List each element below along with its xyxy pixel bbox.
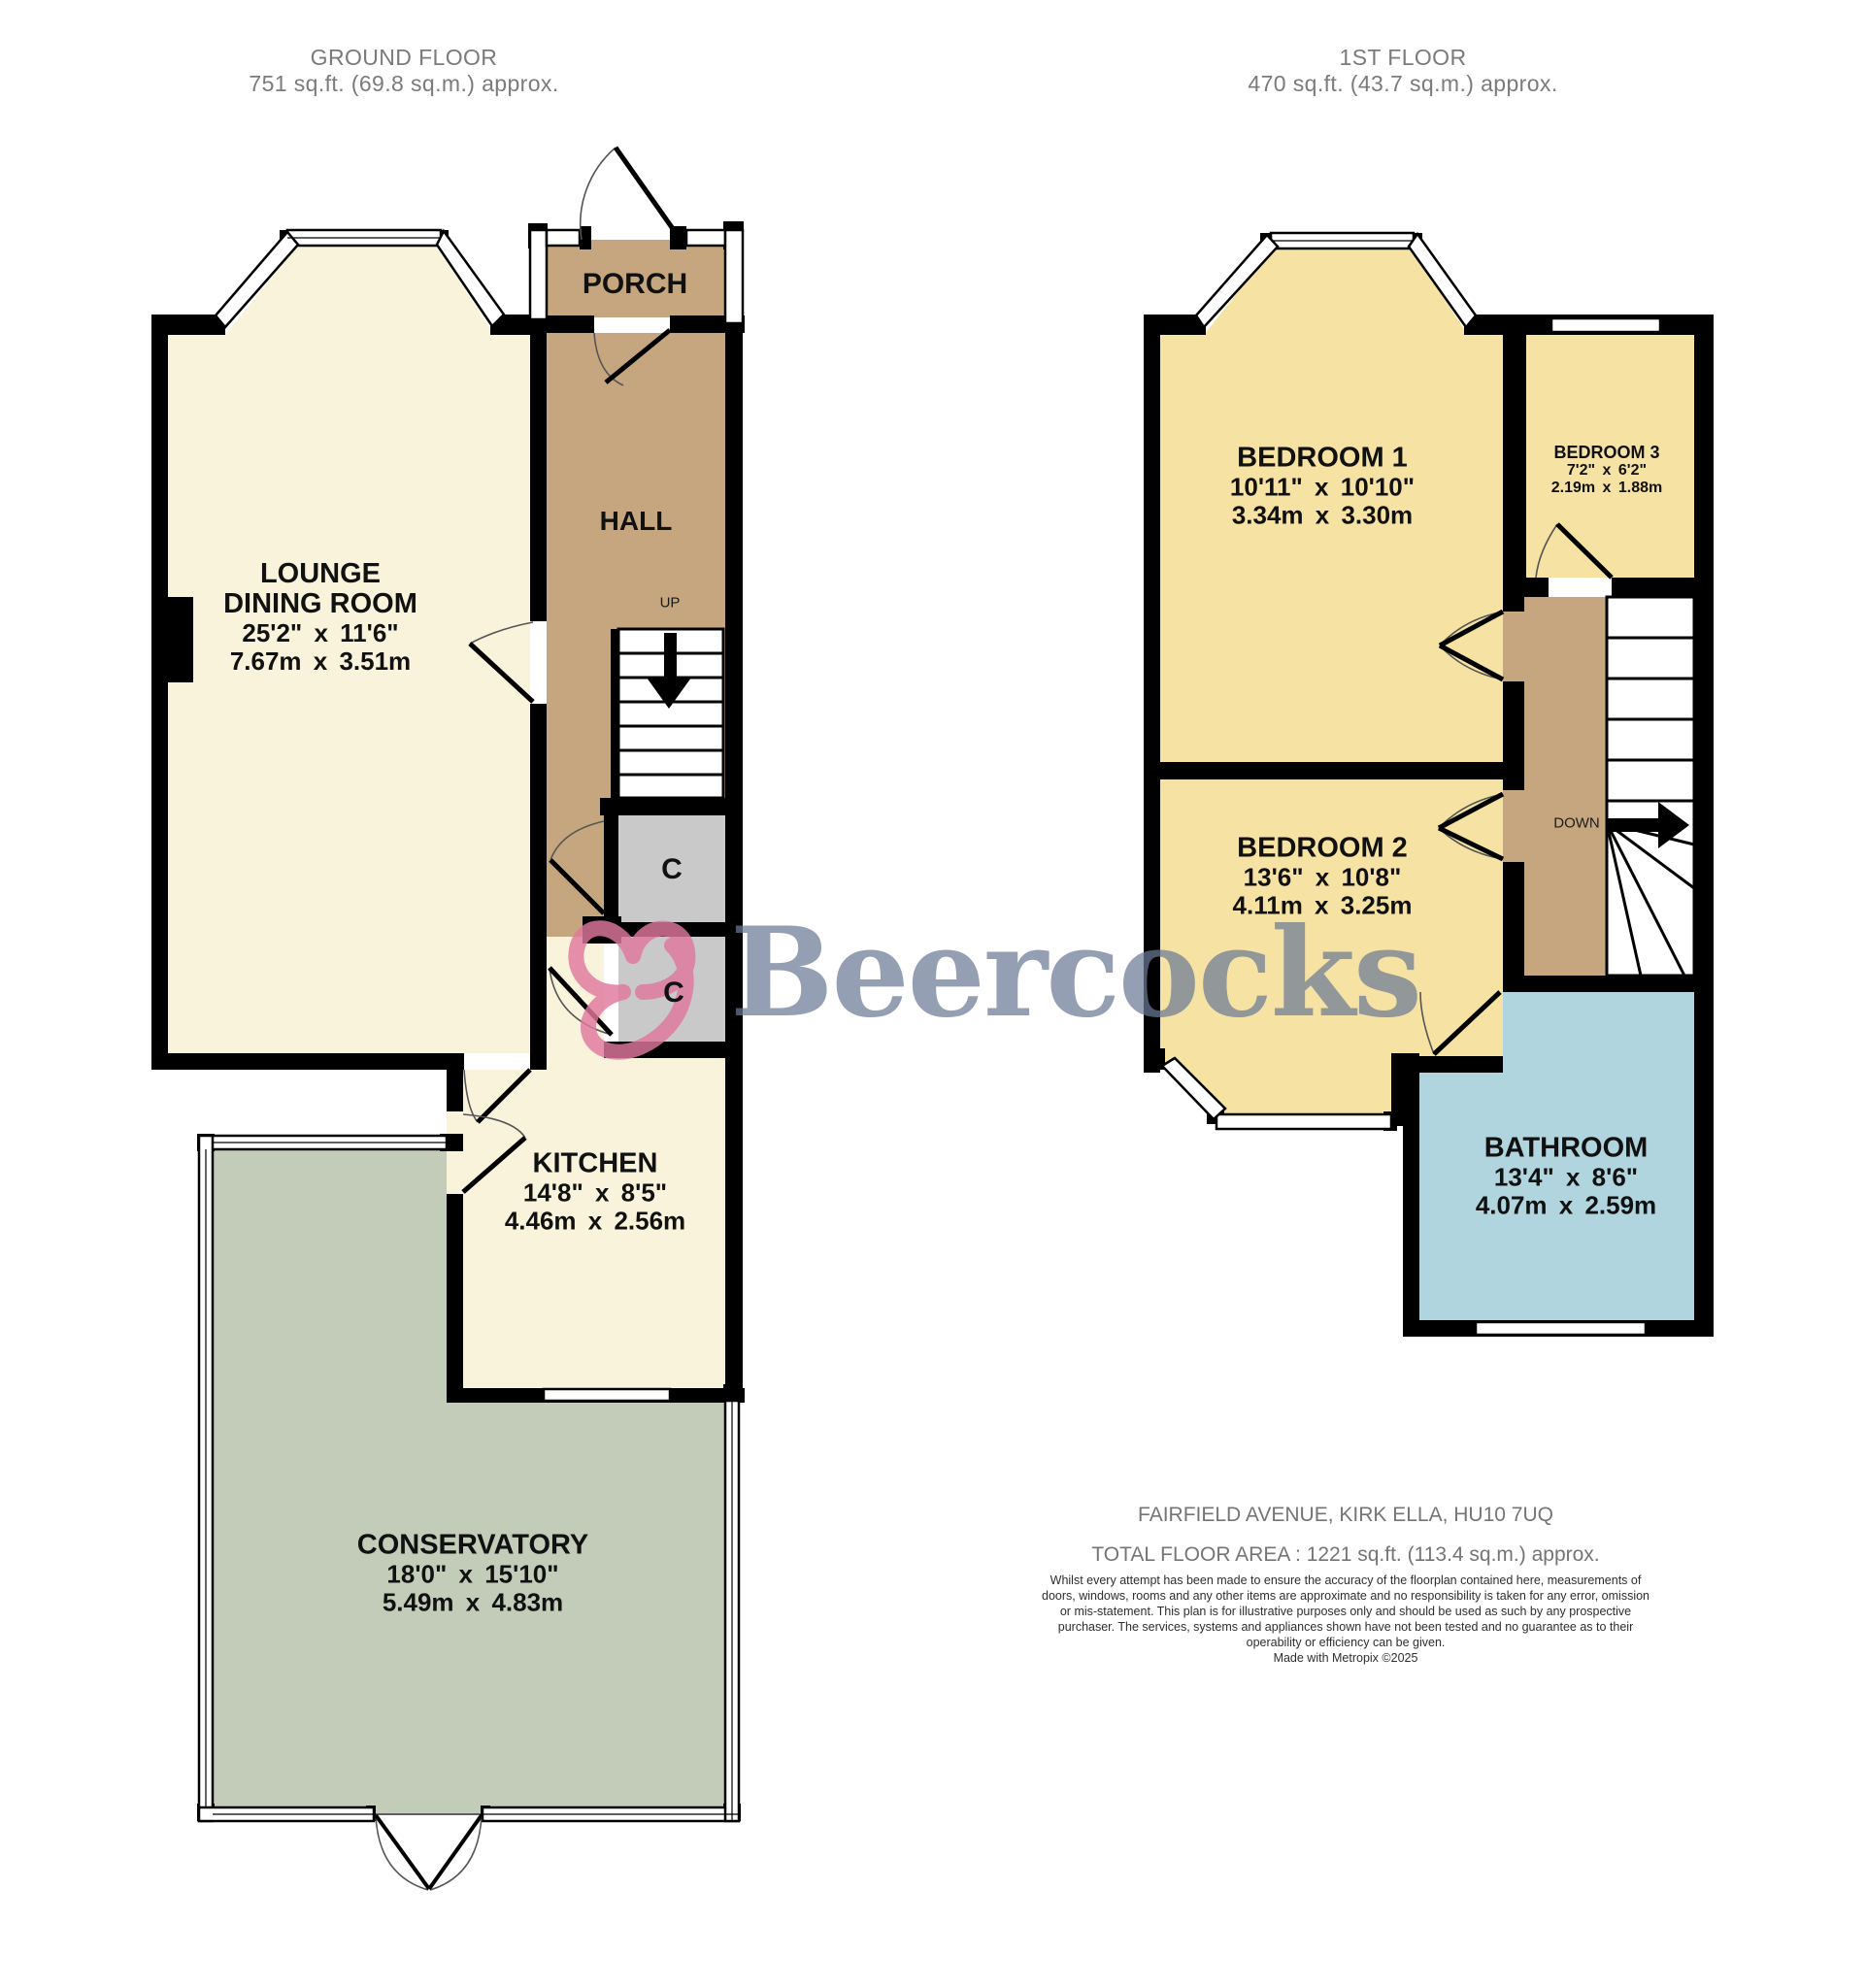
conservatory-metric: 5.49m x 4.83m <box>357 1589 589 1617</box>
ground-floor-area: 751 sq.ft. (69.8 sq.m.) approx. <box>249 71 558 97</box>
ground-floor-header: GROUND FLOOR 751 sq.ft. (69.8 sq.m.) app… <box>249 45 558 97</box>
hall-label: HALL <box>600 506 673 537</box>
bedroom3-name: BEDROOM 3 <box>1551 443 1663 462</box>
bathroom-name: BATHROOM <box>1476 1134 1656 1164</box>
bedroom1-metric: 3.34m x 3.30m <box>1230 502 1415 530</box>
bathroom-imperial: 13'4" x 8'6" <box>1476 1164 1656 1192</box>
closet-bottom-label: C <box>663 977 684 1010</box>
disclaimer-text: Whilst every attempt has been made to en… <box>1035 1573 1656 1650</box>
kitchen-imperial: 14'8" x 8'5" <box>505 1179 685 1208</box>
kitchen-label: KITCHEN 14'8" x 8'5" 4.46m x 2.56m <box>505 1149 685 1236</box>
ground-floor-plan <box>151 148 745 1890</box>
lounge-name2: DINING ROOM <box>223 589 417 619</box>
bedroom2-name: BEDROOM 2 <box>1233 834 1413 864</box>
conservatory-label: CONSERVATORY 18'0" x 15'10" 5.49m x 4.83… <box>357 1531 589 1617</box>
lounge-label: LOUNGE DINING ROOM 25'2" x 11'6" 7.67m x… <box>223 559 417 676</box>
bathroom-metric: 4.07m x 2.59m <box>1476 1192 1656 1220</box>
bedroom3-label: BEDROOM 3 7'2" x 6'2" 2.19m x 1.88m <box>1551 443 1663 497</box>
lounge-imperial: 25'2" x 11'6" <box>223 619 417 647</box>
total-floor-area: TOTAL FLOOR AREA : 1221 sq.ft. (113.4 sq… <box>1091 1543 1599 1567</box>
first-floor-header: 1ST FLOOR 470 sq.ft. (43.7 sq.m.) approx… <box>1248 45 1557 97</box>
conservatory-name: CONSERVATORY <box>357 1531 589 1561</box>
ground-floor-title: GROUND FLOOR <box>249 45 558 71</box>
bedroom1-imperial: 10'11" x 10'10" <box>1230 474 1415 502</box>
stairs-up-arrow <box>664 633 677 681</box>
kitchen-metric: 4.46m x 2.56m <box>505 1208 685 1236</box>
porch-label: PORCH <box>583 268 687 301</box>
lounge-metric: 7.67m x 3.51m <box>223 647 417 676</box>
bedroom2-imperial: 13'6" x 10'8" <box>1233 864 1413 892</box>
stairs-up-label: UP <box>660 595 681 612</box>
stairs-down-label: DOWN <box>1553 815 1600 832</box>
kitchen-name: KITCHEN <box>505 1149 685 1179</box>
closet-top-label: C <box>661 853 683 886</box>
first-floor-area: 470 sq.ft. (43.7 sq.m.) approx. <box>1248 71 1557 97</box>
first-floor-title: 1ST FLOOR <box>1248 45 1557 71</box>
stairs-down <box>1607 597 1694 976</box>
conservatory-imperial: 18'0" x 15'10" <box>357 1561 589 1589</box>
disclaimer-block: Whilst every attempt has been made to en… <box>1035 1573 1656 1666</box>
floorplan-page: GROUND FLOOR 751 sq.ft. (69.8 sq.m.) app… <box>0 0 1866 1988</box>
bedroom3-metric: 2.19m x 1.88m <box>1551 480 1663 497</box>
bedroom3-imperial: 7'2" x 6'2" <box>1551 462 1663 480</box>
stairs-up <box>618 629 723 798</box>
bedroom1-name: BEDROOM 1 <box>1230 444 1415 474</box>
metropix-credit: Made with Metropix ©2025 <box>1035 1650 1656 1666</box>
beercocks-watermark: Beercocks <box>730 901 1420 1044</box>
property-address: FAIRFIELD AVENUE, KIRK ELLA, HU10 7UQ <box>1138 1504 1553 1527</box>
stairs-down-arrow <box>1608 818 1660 832</box>
bedroom1-label: BEDROOM 1 10'11" x 10'10" 3.34m x 3.30m <box>1230 444 1415 530</box>
bathroom-label: BATHROOM 13'4" x 8'6" 4.07m x 2.59m <box>1476 1134 1656 1220</box>
lounge-name: LOUNGE <box>223 559 417 589</box>
